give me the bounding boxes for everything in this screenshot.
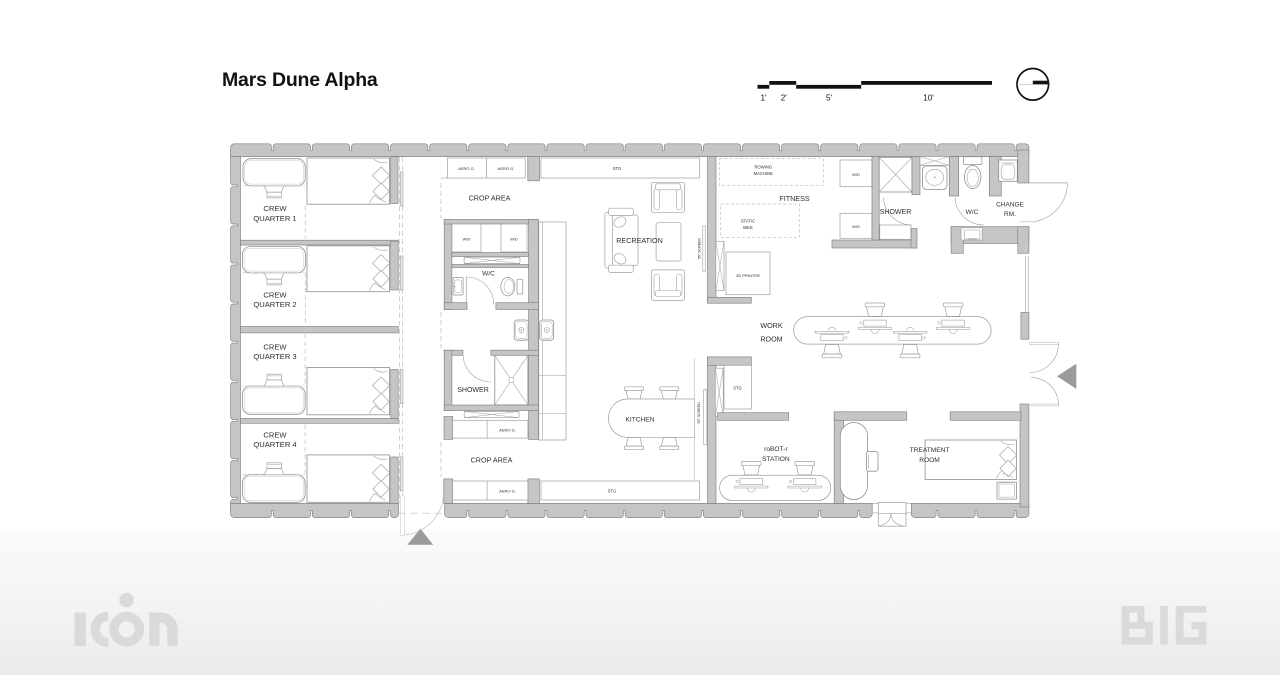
svg-text:QUARTER 1: QUARTER 1 bbox=[253, 214, 296, 223]
svg-text:55″ SCREEN: 55″ SCREEN bbox=[697, 237, 701, 259]
svg-text:WORK: WORK bbox=[760, 321, 783, 330]
svg-text:KITCHEN: KITCHEN bbox=[626, 417, 655, 424]
svg-text:AERO G.: AERO G. bbox=[499, 428, 516, 433]
svg-text:FITNESS: FITNESS bbox=[779, 194, 810, 203]
svg-text:STG: STG bbox=[733, 386, 742, 391]
svg-text:SHOWER: SHOWER bbox=[880, 209, 912, 216]
svg-text:ROOM: ROOM bbox=[919, 457, 940, 464]
svg-text:STG: STG bbox=[608, 489, 617, 494]
svg-text:CROP AREA: CROP AREA bbox=[471, 456, 513, 465]
svg-text:W/C: W/C bbox=[966, 209, 979, 216]
svg-text:QUARTER 3: QUARTER 3 bbox=[253, 352, 296, 361]
svg-text:QUARTER 4: QUARTER 4 bbox=[253, 440, 296, 449]
svg-text:5': 5' bbox=[826, 94, 833, 103]
svg-text:CREW: CREW bbox=[263, 342, 287, 351]
svg-text:3D PRINTER: 3D PRINTER bbox=[736, 273, 760, 278]
svg-text:ROWING: ROWING bbox=[754, 165, 772, 170]
svg-text:SHOWER: SHOWER bbox=[457, 387, 489, 394]
svg-text:QUARTER 2: QUARTER 2 bbox=[253, 300, 296, 309]
svg-text:W/D: W/D bbox=[852, 172, 860, 177]
svg-text:W/C: W/C bbox=[482, 271, 495, 278]
svg-text:TREATMENT: TREATMENT bbox=[910, 447, 950, 454]
svg-text:CREW: CREW bbox=[263, 204, 287, 213]
svg-text:CREW: CREW bbox=[263, 291, 287, 300]
svg-text:2': 2' bbox=[781, 94, 788, 103]
svg-text:AERO G.: AERO G. bbox=[499, 489, 516, 494]
svg-text:BIKE: BIKE bbox=[743, 225, 753, 230]
svg-text:AERO G.: AERO G. bbox=[498, 166, 515, 171]
svg-text:RM.: RM. bbox=[1004, 211, 1016, 218]
svg-text:W/D: W/D bbox=[510, 237, 518, 242]
svg-text:AERO G.: AERO G. bbox=[458, 166, 475, 171]
svg-text:RECREATION: RECREATION bbox=[616, 236, 663, 245]
svg-text:STATIC: STATIC bbox=[741, 219, 755, 224]
svg-text:CREW: CREW bbox=[263, 430, 287, 439]
svg-text:W/D: W/D bbox=[463, 237, 471, 242]
svg-text:CROP AREA: CROP AREA bbox=[469, 194, 511, 203]
svg-text:1': 1' bbox=[760, 94, 767, 103]
svg-text:MACHINE: MACHINE bbox=[754, 171, 774, 176]
svg-text:STG: STG bbox=[613, 166, 622, 171]
svg-text:CHANGE: CHANGE bbox=[996, 202, 1024, 209]
svg-text:STATION: STATION bbox=[762, 456, 790, 463]
svg-text:10': 10' bbox=[923, 94, 934, 103]
svg-text:roBOT-r: roBOT-r bbox=[764, 446, 788, 453]
svg-text:ROOM: ROOM bbox=[760, 335, 782, 344]
svg-text:55″ SCREEN: 55″ SCREEN bbox=[697, 402, 701, 424]
svg-text:W/D: W/D bbox=[852, 224, 860, 229]
svg-text:Mars Dune Alpha: Mars Dune Alpha bbox=[222, 69, 378, 91]
